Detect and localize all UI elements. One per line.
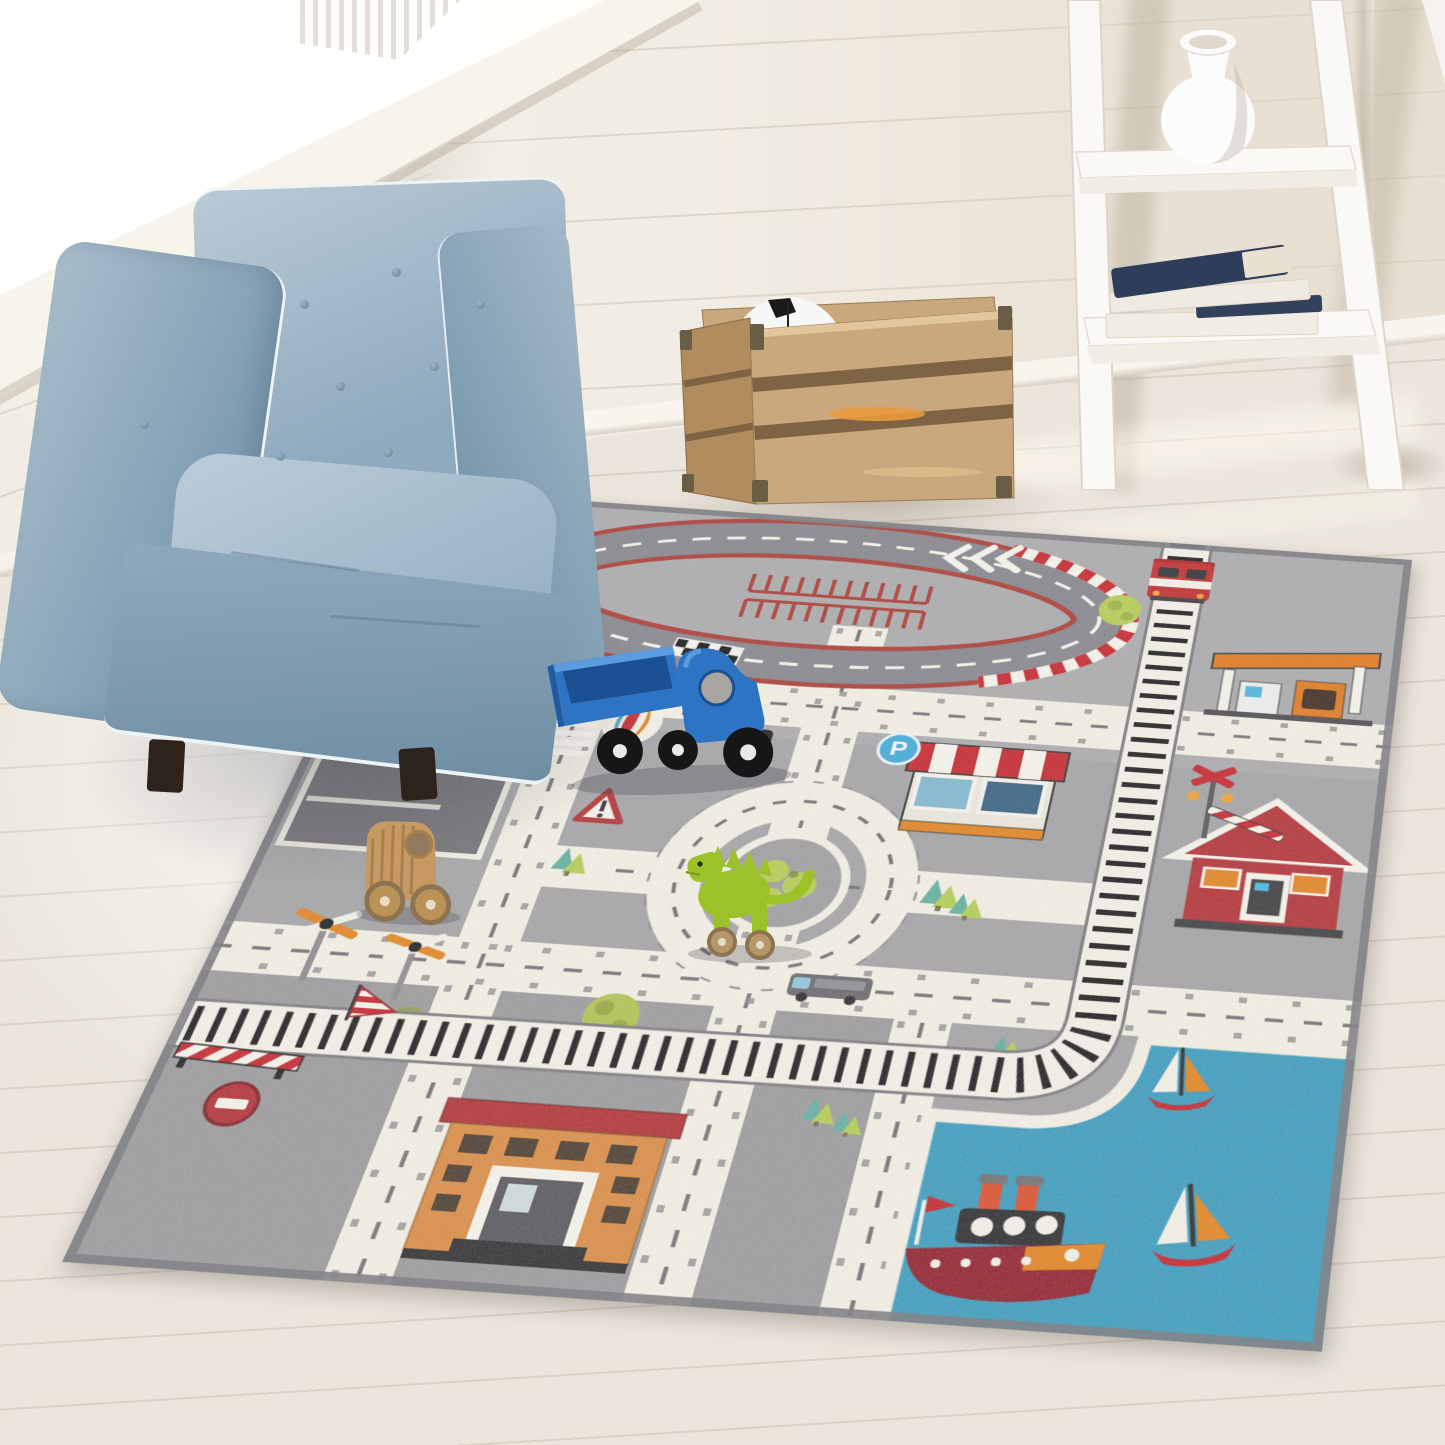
tuft-button <box>384 448 393 457</box>
chair-foot-left <box>147 739 186 793</box>
ladder-left-rail <box>1068 0 1116 490</box>
ladder-right-rail <box>1310 0 1404 490</box>
toy-truck <box>544 621 813 804</box>
toy-dinosaur <box>672 842 832 964</box>
tuft-button <box>336 382 345 391</box>
truck-bed <box>547 646 685 728</box>
playroom-photo: P <box>0 0 1445 1445</box>
crate-front-face <box>750 310 1014 504</box>
tuft-button <box>276 452 285 461</box>
truck-cab-hole <box>699 670 735 706</box>
dino-body <box>685 846 815 938</box>
wood-car-hole <box>405 831 432 858</box>
dino-tail <box>764 870 815 905</box>
crate-glow <box>829 407 925 421</box>
tuft-button <box>476 300 485 309</box>
book-stack <box>1106 244 1323 338</box>
ladder-rear-rail <box>1422 0 1445 95</box>
tuft-button <box>392 268 401 277</box>
tuft-button <box>300 300 309 309</box>
tuft-button <box>430 362 439 371</box>
dino-eye <box>697 861 702 866</box>
ladder-shelf <box>1048 0 1445 490</box>
chair-foot-right <box>398 747 438 801</box>
tuft-button <box>140 420 149 429</box>
toy-wood-car <box>350 804 472 928</box>
vase <box>1161 29 1255 165</box>
